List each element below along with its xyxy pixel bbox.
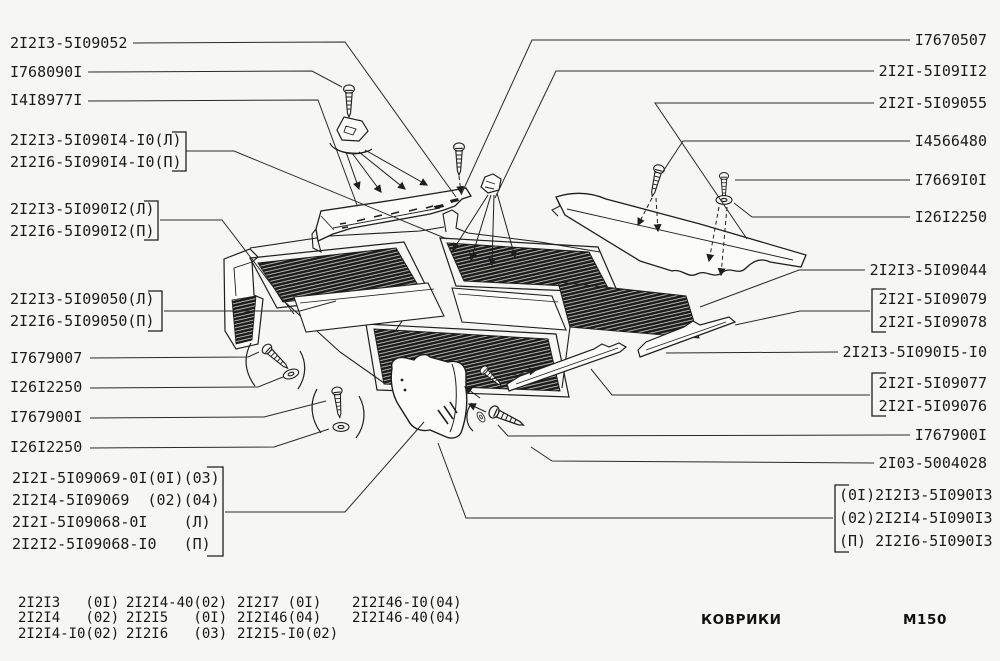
part-label: 2I2I-5I09076 xyxy=(879,398,987,415)
part-label: 2I2I-5I09078 xyxy=(879,314,987,331)
part-label: 2I2I-5I09077 xyxy=(879,375,987,392)
part-label: I7669I0I xyxy=(915,172,987,189)
part-label: 2I2I3-5I090I4-I0(Л) xyxy=(10,132,182,149)
splash-shield xyxy=(391,355,467,438)
part-label: I4566480 xyxy=(915,133,987,150)
part-label: 2I2I4-5I09069 (02)(04) xyxy=(12,492,220,509)
exploded-view-drawing xyxy=(0,0,1000,661)
part-label: 2I2I6-5I090I4-I0(П) xyxy=(10,154,182,171)
part-label: 2I2I-5I09055 xyxy=(879,95,987,112)
part-label: (02)2I2I4-5I090I3 xyxy=(839,510,993,527)
front-shelf-mat xyxy=(312,188,471,252)
kick-panel-trim xyxy=(224,249,263,349)
part-label: 2I2I-5I09II2 xyxy=(879,63,987,80)
part-label: (0I)2I2I3-5I090I3 xyxy=(839,487,993,504)
screw-icon xyxy=(647,164,665,198)
push-clip-icon xyxy=(481,174,501,193)
part-label: I4I8977I xyxy=(10,92,82,109)
part-label: 2I2I3-5I09044 xyxy=(870,262,987,279)
model-legend-column: 2I2I46-I0(04) 2I2I46-40(04) xyxy=(352,596,462,627)
catalog-page: 2I2I3-5I09052 I768090I I4I8977I 2I2I3-5I… xyxy=(0,0,1000,661)
part-label: 2I2I3-5I090I5-I0 xyxy=(843,344,988,361)
screw-icon xyxy=(331,387,344,418)
washer-icon xyxy=(475,411,486,424)
model-legend-column: 2I2I7 (0I) 2I2I46(04) 2I2I5-I0(02) xyxy=(237,596,338,642)
part-label: 2I2I-5I09069-0I(0I)(03) xyxy=(12,470,220,487)
part-label: I768090I xyxy=(10,64,82,81)
part-label: I26I2250 xyxy=(10,439,82,456)
sheet-caption: КОВРИКИ xyxy=(701,612,782,628)
washer-icon xyxy=(282,367,300,381)
part-label: 2I2I6-5I090I2(П) xyxy=(10,223,155,240)
plate-mount-arrows xyxy=(346,150,427,192)
part-label: (П) 2I2I6-5I090I3 xyxy=(839,533,993,550)
sheet-page-code: М150 xyxy=(903,612,947,628)
screw-icon xyxy=(454,143,465,175)
model-legend-column: 2I2I4-40(02) 2I2I5 (0I) 2I2I6 (03) xyxy=(126,596,227,642)
model-legend-column: 2I2I3 (0I) 2I2I4 (02) 2I2I4-I0(02) xyxy=(18,596,119,642)
part-label: 2I2I-5I09068-0I (Л) xyxy=(12,514,211,531)
bolt-icon xyxy=(487,404,526,430)
washer-icon xyxy=(333,423,349,432)
part-label: 2I2I6-5I09050(П) xyxy=(10,313,155,330)
part-label: 2I2I-5I09079 xyxy=(879,291,987,308)
part-label: 2I2I3-5I09052 xyxy=(10,35,127,52)
part-label: I7670507 xyxy=(915,32,987,49)
screw-icon xyxy=(344,85,355,117)
part-label: I26I2250 xyxy=(10,379,82,396)
screw-icon xyxy=(260,342,291,372)
part-label: 2I2I2-5I09068-I0 (П) xyxy=(12,536,211,553)
part-label: I26I2250 xyxy=(915,209,987,226)
part-label: I7679007 xyxy=(10,350,82,367)
part-label: 2I2I3-5I090I2(Л) xyxy=(10,201,155,218)
part-label: I767900I xyxy=(10,409,82,426)
part-label: 2I03-5004028 xyxy=(879,455,987,472)
part-label: 2I2I3-5I09050(Л) xyxy=(10,291,155,308)
part-label: I767900I xyxy=(915,427,987,444)
